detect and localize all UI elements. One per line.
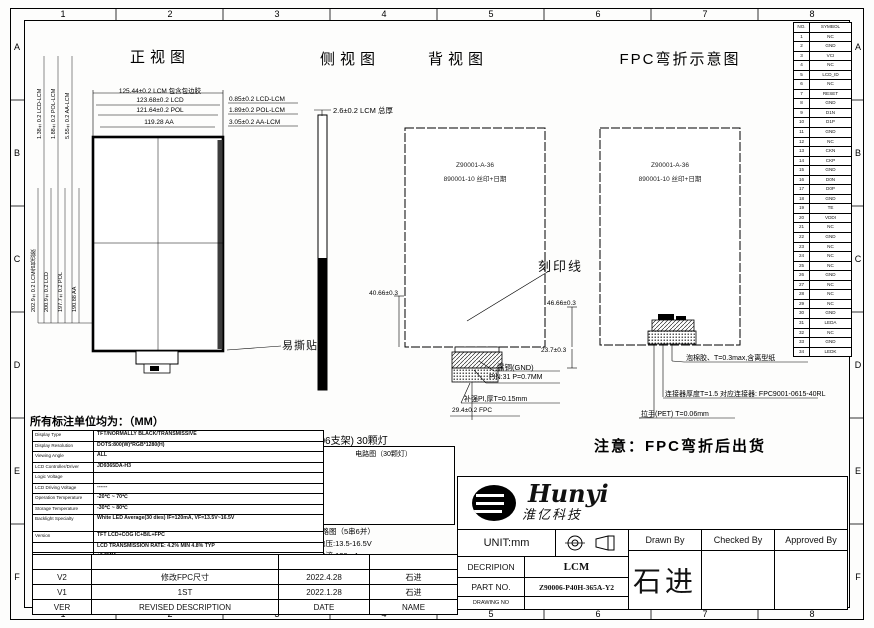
pin-table-row: 25 NC: [794, 261, 851, 271]
ship-note: 注意：FPC弯折后出货: [594, 435, 766, 456]
pin-table-row: 18 GND: [794, 194, 851, 204]
pin-table-row: 4 NC: [794, 60, 851, 70]
pin-number: 24: [794, 252, 810, 261]
pin-table-row: 33 GND: [794, 337, 851, 347]
pin-table-row: 15 GND: [794, 165, 851, 175]
dim-back-left: 40.66±0.3: [360, 290, 398, 297]
pin-number: 7: [794, 90, 810, 99]
pin-symbol: VDDI: [810, 214, 851, 223]
description-label: DECRIPION: [458, 557, 525, 577]
pin-number: 23: [794, 243, 810, 252]
pin-symbol: D0P: [810, 185, 851, 194]
dim-back-right2: 23.7±0.3: [541, 347, 566, 354]
pin-number: 34: [794, 348, 810, 357]
spec-table-row: Storage Temperature -30℃ ~ 80℃: [33, 504, 323, 515]
pin-table-row: 22 GND: [794, 232, 851, 242]
fpc-marking-line1: Z90001-A-36: [610, 162, 730, 169]
fpc-view-title: FPC弯折示意图: [605, 48, 755, 69]
dim-v-pol-lcm: 1.88±0.2 POL-LCM: [52, 57, 64, 139]
handle-callout: 拉手(PET) T=0.06mm: [641, 409, 709, 419]
spec-row-value: [94, 473, 323, 483]
spec-row-label: Display Type: [33, 431, 94, 441]
pin-number: 6: [794, 80, 810, 89]
pin-table-row: 24 NC: [794, 251, 851, 261]
pin-table-row: 16 D0N: [794, 175, 851, 185]
stiffener-label: 补强PI,厚T=0.15mm: [464, 394, 527, 404]
revision-header-row: VER REVISED DESCRIPTION DATE NAME: [33, 599, 457, 614]
dim-lcm-width: 125.44±0.2 LCM 包含包边胶: [95, 85, 225, 95]
dim-v-lcd-lcm: 1.38±0.2 LCD-LCM: [38, 57, 50, 139]
pin-table-row: 8 GND: [794, 98, 851, 108]
revision-row-v1: V1 1ST 2022.1.28 石进: [33, 584, 457, 599]
pin-table-row: 29 NC: [794, 299, 851, 309]
pin-table-row: 21 NC: [794, 222, 851, 232]
spec-table-row: Operation Temperature -20℃ ~ 70℃: [33, 493, 323, 504]
pin-table-row: 10 D1P: [794, 117, 851, 127]
pin-symbol: GND: [810, 128, 851, 137]
spec-table-row: LCD Driving Voltage ------: [33, 483, 323, 494]
pin-number: 22: [794, 233, 810, 242]
spec-table-row: Display Resolution DOTS:800(W)*RGB*1280(…: [33, 441, 323, 452]
frame-col-label: 7: [694, 609, 716, 619]
spec-row-value: DOTS:800(W)*RGB*1280(H): [94, 442, 323, 452]
pin-table-row: 26 GND: [794, 270, 851, 280]
pin-symbol: GND: [810, 338, 851, 347]
spec-row-value: White LED Average(30 dies) IF=120mA, VF=…: [94, 515, 323, 531]
pin-table-row: 20 VDDI: [794, 213, 851, 223]
dim-v-pol-height: 197.7±0.2 POL: [59, 190, 71, 312]
pin-symbol: GND: [810, 166, 851, 175]
pin-number: 18: [794, 195, 810, 204]
frame-row-label: C: [10, 254, 24, 264]
dim-v-lcd-height: 200.9±0.2 LCD: [45, 190, 57, 312]
frame-col-label: 5: [480, 609, 502, 619]
pin-table-row: 11 GND: [794, 127, 851, 137]
frame-col-label: 7: [694, 9, 716, 19]
pin-table-row: 23 NC: [794, 242, 851, 252]
pin-symbol: NC: [810, 329, 851, 338]
pin-symbol: LEDK: [810, 348, 851, 357]
units-note: 所有标注单位均为：（MM）: [30, 413, 164, 429]
pin-number: 5: [794, 71, 810, 80]
pin-number: 28: [794, 290, 810, 299]
gnd-copper-label: 露铜(GND): [497, 362, 534, 373]
dim-v-aa-lcm: 5.55±0.2 AA-LCM: [66, 57, 78, 139]
dim-lcd-width: 123.68±0.2 LCD: [103, 97, 217, 104]
pin-symbol: GND: [810, 42, 851, 51]
pin-table-row: 1 NC: [794, 32, 851, 42]
dim-lcm-thickness: 2.6±0.2 LCM 总厚: [333, 105, 393, 116]
spec-row-label: Operation Temperature: [33, 494, 94, 504]
pin-symbol: CKP: [810, 157, 851, 166]
spec-row-label: Display Resolution: [33, 442, 94, 452]
projection-symbols: [556, 530, 628, 556]
unit-label: UNIT:mm: [458, 530, 556, 556]
pin-number: 10: [794, 118, 810, 127]
pin-symbol: D1N: [810, 109, 851, 118]
pin-table-row: 12 NC: [794, 137, 851, 147]
frame-col-label: 5: [480, 9, 502, 19]
pin-symbol: CKN: [810, 147, 851, 156]
pin-number: 2: [794, 42, 810, 51]
pin-table-row: 13 CKN: [794, 146, 851, 156]
spec-row-value: TFT/NORMALLY BLACK/TRANSMISSIVE: [94, 431, 323, 441]
frame-row-label: C: [851, 254, 865, 264]
revision-desc: 1ST: [92, 585, 279, 599]
spec-row-value: LCD TRANSMISSION RATE: 4.2% MIN 4.8% TYP: [94, 543, 323, 553]
pin-symbol: NC: [810, 262, 851, 271]
drawing-sheet: 1 2 3 4 5 6 7 8 1 2 3 4 5 6 7 8 A B C D …: [0, 0, 874, 628]
approved-by-header: Approved By: [775, 530, 847, 550]
frame-row-label: D: [851, 360, 865, 370]
pin-number: 26: [794, 271, 810, 280]
drawing-no-label: DRAWING NO: [458, 597, 525, 609]
revision-date: 2022.1.28: [279, 585, 370, 599]
pin-symbol: NC: [810, 61, 851, 70]
pin-symbol: NC: [810, 223, 851, 232]
part-no-value: Z90006-P40H-365A-Y2: [525, 578, 628, 596]
spec-table-row: Version TFT LCD+COG IC+B/L+FPC: [33, 531, 323, 542]
pin-no-header: NO.: [794, 23, 810, 32]
dim-v-lcm-height: 202.9±0.2 LCM含包边胶: [32, 190, 44, 312]
frame-col-label: 4: [373, 9, 395, 19]
title-block: Hunyi 淮亿科技 UNIT:mm: [457, 476, 848, 610]
pin-number: 29: [794, 300, 810, 309]
logo-ellipse-icon: [472, 485, 516, 521]
frame-row-label: F: [851, 572, 865, 582]
pin-pitch-label: PIN:31 P=0.7MM: [489, 374, 543, 381]
spec-table-row: Viewing Angle ALL: [33, 451, 323, 462]
company-logo: Hunyi 淮亿科技: [458, 477, 847, 530]
spec-row-value: -20℃ ~ 70℃: [94, 494, 323, 504]
circuit-diagram-box: 电路图（30颗灯）: [312, 446, 455, 525]
pin-symbol: LCD_ID: [810, 71, 851, 80]
pin-number: 19: [794, 204, 810, 213]
spec-table-row: LCD TRANSMISSION RATE: 4.2% MIN 4.8% TYP: [33, 542, 323, 553]
pin-table-row: 34 LEDK: [794, 347, 851, 357]
spec-row-label: Logic Voltage: [33, 473, 94, 483]
pin-symbol: NC: [810, 281, 851, 290]
pin-symbol: NC: [810, 300, 851, 309]
dim-v-aa-height: 190.88 AA: [73, 190, 85, 312]
spec-row-value: JD9365DA-H3: [94, 463, 323, 473]
dim-back-right: 46.66±0.3: [547, 300, 576, 307]
pin-table-row: 32 NC: [794, 328, 851, 338]
revision-table: V2 修改FPC尺寸 2022.4.28 石进 V1 1ST 2022.1.28…: [32, 554, 458, 615]
logo-text: Hunyi: [528, 483, 609, 505]
drawing-no-value: [525, 597, 628, 609]
connector-callout: 连接器厚度T=1.5 对应连接器: FPC9001-0615-40RL: [665, 389, 825, 399]
pin-table-row: 31 LEDA: [794, 318, 851, 328]
spec-row-value: -30℃ ~ 80℃: [94, 505, 323, 515]
part-no-label: PART NO.: [458, 578, 525, 596]
spec-table: Display Type TFT/NORMALLY BLACK/TRANSMIS…: [32, 430, 324, 574]
frame-row-label: D: [10, 360, 24, 370]
pin-symbol: NC: [810, 33, 851, 42]
dim-pol-lcm-offset: 1.89±0.2 POL-LCM: [229, 107, 285, 114]
back-marking-line2: 890001-10 丝印+日期: [415, 173, 535, 183]
pin-table-row: 3 VCI: [794, 51, 851, 61]
pin-table-row: 2 GND: [794, 41, 851, 51]
spec-row-value: ALL: [94, 452, 323, 462]
pin-number: 27: [794, 281, 810, 290]
pin-table-row: 5 LCD_ID: [794, 70, 851, 80]
spec-row-label: Version: [33, 532, 94, 542]
engrave-line-callout: 刻印线: [538, 256, 583, 275]
spec-row-label: Viewing Angle: [33, 452, 94, 462]
pin-definition-table: NO. SYMBOL 1 NC 2 GND 3 VCI 4 NC: [793, 22, 852, 357]
spec-table-row: LCD Controller/Driver JD9365DA-H3: [33, 462, 323, 473]
frame-row-label: F: [10, 572, 24, 582]
pin-symbol: GND: [810, 233, 851, 242]
checked-by-name: [702, 551, 775, 609]
pin-number: 32: [794, 329, 810, 338]
description-value: LCM: [525, 557, 628, 577]
pin-symbol: D0N: [810, 176, 851, 185]
revision-date: 2022.4.28: [279, 570, 370, 584]
dim-pol-width: 121.64±0.2 POL: [105, 107, 215, 114]
revision-header-name: NAME: [370, 600, 457, 614]
frame-col-label: 8: [801, 609, 823, 619]
spec-row-label: LCD Controller/Driver: [33, 463, 94, 473]
fpc-width-label: 29.4±0.2 FPC: [452, 407, 492, 414]
revision-desc: 修改FPC尺寸: [92, 570, 279, 584]
frame-row-label: E: [851, 466, 865, 476]
pin-number: 12: [794, 138, 810, 147]
spec-table-row: Backlight Specialty White LED Average(30…: [33, 514, 323, 531]
drawn-by-name: 石进: [629, 551, 702, 609]
frame-row-label: B: [10, 148, 24, 158]
pin-number: 16: [794, 176, 810, 185]
pin-symbol: GND: [810, 271, 851, 280]
frame-row-label: E: [10, 466, 24, 476]
pin-number: 9: [794, 109, 810, 118]
pin-number: 3: [794, 52, 810, 61]
circuit-voltage-label: 电压:13.5-16.5V: [318, 538, 372, 549]
frame-row-label: A: [851, 42, 865, 52]
pin-symbol: D1P: [810, 118, 851, 127]
drawn-by-header: Drawn By: [629, 530, 702, 550]
back-view-title: 背视图: [413, 48, 503, 69]
pin-table-row: 28 NC: [794, 289, 851, 299]
side-view-title: 侧视图: [305, 48, 395, 69]
pin-table-row: 7 RESET: [794, 89, 851, 99]
pin-symbol: GND: [810, 195, 851, 204]
frame-col-label: 2: [159, 9, 181, 19]
pin-table-row: 9 D1N: [794, 108, 851, 118]
frame-col-label: 8: [801, 9, 823, 19]
revision-ver: V2: [33, 570, 92, 584]
pin-number: 20: [794, 214, 810, 223]
frame-col-label: 6: [587, 9, 609, 19]
pin-symbol: TE: [810, 204, 851, 213]
spec-row-value: TFT LCD+COG IC+B/L+FPC: [94, 532, 323, 542]
circuit-box-label: 电路图（30颗灯）: [313, 449, 454, 459]
third-angle-projection-icon: [562, 533, 622, 553]
revision-header-date: DATE: [279, 600, 370, 614]
spec-row-label: LCD Driving Voltage: [33, 484, 94, 494]
pin-symbol: NC: [810, 138, 851, 147]
revision-row-v2: V2 修改FPC尺寸 2022.4.28 石进: [33, 569, 457, 584]
spec-row-label: [33, 543, 94, 553]
pin-number: 30: [794, 309, 810, 318]
pin-number: 8: [794, 99, 810, 108]
pin-table-row: 17 D0P: [794, 184, 851, 194]
pin-number: 1: [794, 33, 810, 42]
pin-symbol: GND: [810, 309, 851, 318]
pin-table-row: 19 TE: [794, 203, 851, 213]
tear-sticker-label: 易撕贴: [282, 337, 318, 353]
pin-symbol-header: SYMBOL: [810, 23, 851, 32]
pin-number: 15: [794, 166, 810, 175]
pin-symbol: NC: [810, 252, 851, 261]
revision-header-ver: VER: [33, 600, 92, 614]
dim-aa-lcm-offset: 3.05±0.2 AA-LCM: [229, 119, 280, 126]
pin-symbol: NC: [810, 243, 851, 252]
pin-symbol: RESET: [810, 90, 851, 99]
pin-symbol: VCI: [810, 52, 851, 61]
dim-lcd-lcm-offset: 0.85±0.2 LCD-LCM: [229, 96, 285, 103]
pin-table-row: 30 GND: [794, 308, 851, 318]
pin-symbol: NC: [810, 290, 851, 299]
checked-by-header: Checked By: [702, 530, 775, 550]
pin-number: 21: [794, 223, 810, 232]
spec-table-row: Logic Voltage: [33, 472, 323, 483]
pin-table-row: 27 NC: [794, 280, 851, 290]
back-marking-line1: Z90001-A-36: [415, 162, 535, 169]
pin-number: 31: [794, 319, 810, 328]
fpc-marking-line2: 890001-10 丝印+日期: [610, 173, 730, 183]
revision-header-desc: REVISED DESCRIPTION: [92, 600, 279, 614]
revision-blank-row: [33, 555, 457, 569]
foam-tape-callout: 泡棉胶、T=0.3max,含离型纸: [686, 353, 775, 363]
pin-number: 4: [794, 61, 810, 70]
pin-number: 13: [794, 147, 810, 156]
pin-number: 25: [794, 262, 810, 271]
revision-ver: V1: [33, 585, 92, 599]
front-view-title: 正视图: [100, 46, 220, 67]
pin-symbol: NC: [810, 80, 851, 89]
revision-name: 石进: [370, 585, 457, 599]
pin-number: 33: [794, 338, 810, 347]
spec-row-label: Backlight Specialty: [33, 515, 94, 531]
spec-table-row: Display Type TFT/NORMALLY BLACK/TRANSMIS…: [33, 431, 323, 441]
pin-table-row: 14 CKP: [794, 156, 851, 166]
spec-row-value: ------: [94, 484, 323, 494]
dim-aa-width: 119.28 AA: [107, 119, 211, 126]
frame-row-label: A: [10, 42, 24, 52]
frame-row-label: B: [851, 148, 865, 158]
pin-number: 11: [794, 128, 810, 137]
pin-number: 14: [794, 157, 810, 166]
frame-col-label: 1: [52, 9, 74, 19]
spec-row-label: Storage Temperature: [33, 505, 94, 515]
pin-number: 17: [794, 185, 810, 194]
pin-symbol: LEDA: [810, 319, 851, 328]
revision-name: 石进: [370, 570, 457, 584]
pin-table-header: NO. SYMBOL: [794, 23, 851, 32]
approved-by-name: [775, 551, 847, 609]
frame-col-label: 3: [266, 9, 288, 19]
frame-col-label: 6: [587, 609, 609, 619]
pin-table-row: 6 NC: [794, 79, 851, 89]
pin-symbol: GND: [810, 99, 851, 108]
